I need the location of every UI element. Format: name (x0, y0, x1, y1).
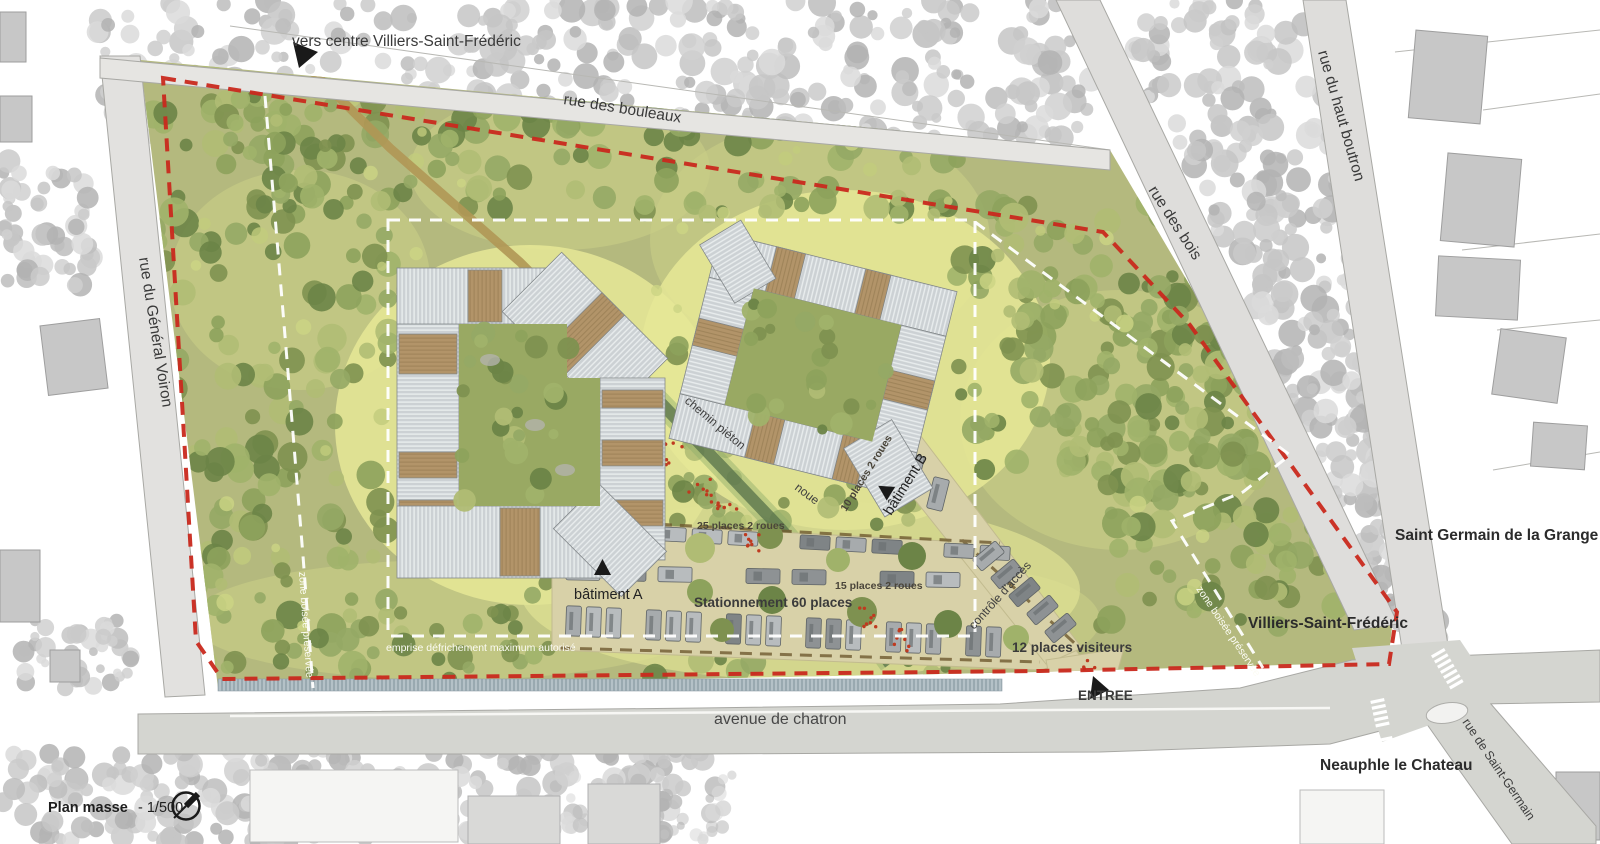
label-emprise: emprise défrichement maximum autorisé (386, 642, 576, 654)
label-batiment-a: bâtiment A (574, 587, 643, 603)
plan-canvas: vers centre Villiers-Saint-Frédéric rue … (0, 0, 1600, 844)
neighbour-building (1408, 30, 1487, 124)
label-vers-centre: vers centre Villiers-Saint-Frédéric (292, 33, 521, 50)
neighbour-building (1492, 329, 1567, 404)
neighbour-building (0, 96, 32, 142)
drain-strip (218, 679, 1002, 691)
label-plan-masse: Plan masse (48, 800, 128, 816)
site-plan: vers centre Villiers-Saint-Frédéric rue … (0, 0, 1600, 844)
label-saint-germain-grange: Saint Germain de la Grange (1395, 527, 1599, 544)
label-stationnement: Stationnement 60 places (694, 595, 852, 610)
label-25-places: 25 places 2 roues (697, 520, 785, 532)
neighbour-building (40, 319, 108, 396)
label-places-visiteurs: 12 places visiteurs (1012, 640, 1132, 655)
neighbour-building (50, 650, 80, 682)
neighbour-building (1440, 153, 1521, 247)
neighbour-building (1435, 256, 1520, 320)
label-echelle: - 1/500 (138, 800, 183, 816)
neighbour-building (0, 550, 40, 622)
label-neauphle: Neauphle le Chateau (1320, 757, 1472, 774)
label-entree: ENTREE (1078, 688, 1133, 703)
label-avenue-chatron: avenue de chatron (714, 711, 847, 728)
neighbour-building (1531, 422, 1588, 470)
label-villiers: Villiers-Saint-Frédéric (1248, 615, 1408, 632)
label-15-places: 15 places 2 roues (835, 580, 923, 592)
neighbour-building (0, 12, 26, 62)
